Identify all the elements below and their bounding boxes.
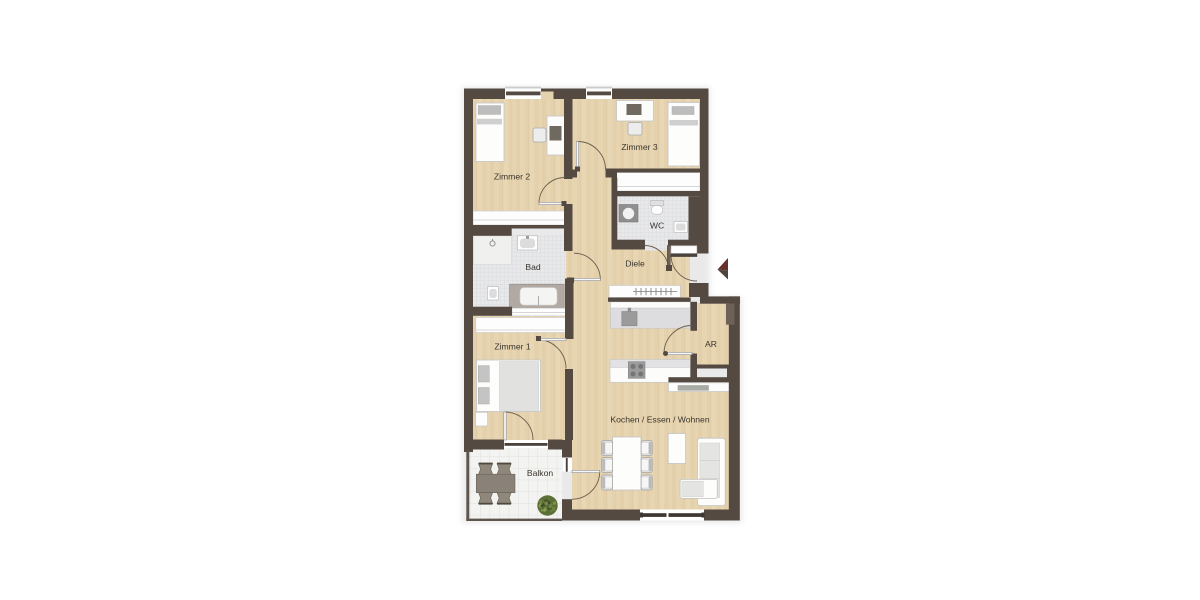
- svg-text:AR: AR: [705, 339, 717, 349]
- svg-text:Zimmer 1: Zimmer 1: [494, 342, 531, 352]
- svg-text:Zimmer 2: Zimmer 2: [494, 172, 531, 182]
- svg-text:Diele: Diele: [625, 259, 645, 269]
- svg-text:Balkon: Balkon: [527, 468, 553, 478]
- svg-text:Kochen / Essen / Wohnen: Kochen / Essen / Wohnen: [610, 415, 709, 425]
- svg-text:WC: WC: [650, 221, 664, 231]
- svg-text:Zimmer 3: Zimmer 3: [621, 142, 658, 152]
- svg-text:Bad: Bad: [525, 262, 541, 272]
